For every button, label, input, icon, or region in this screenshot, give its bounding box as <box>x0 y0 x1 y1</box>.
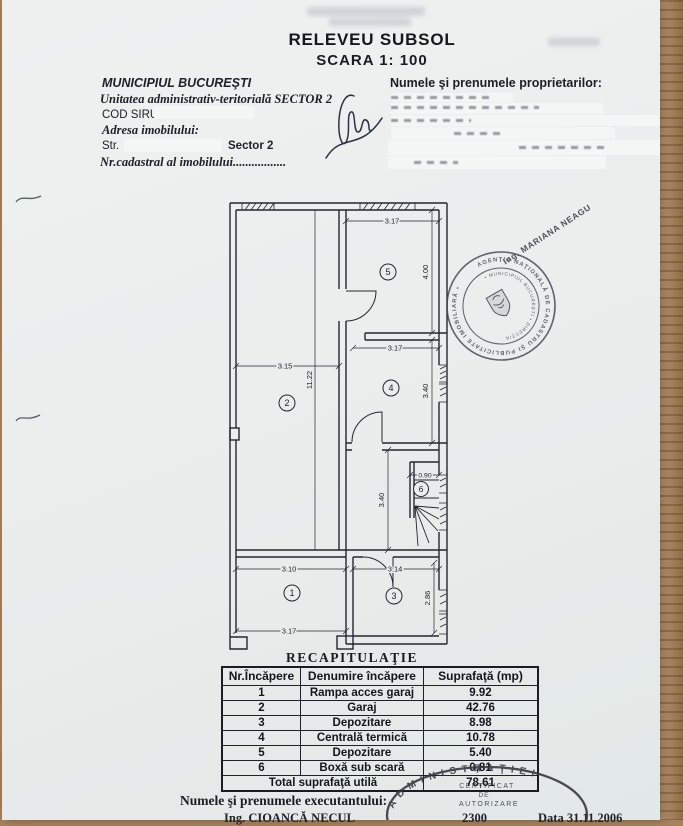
owners-label: Numele şi prenumele proprietarilor: <box>390 76 602 90</box>
signature-squiggle <box>320 90 390 165</box>
floor-plan: 3.17 4.00 3.17 3.40 3.15 11.22 0.90 3.40… <box>207 188 463 660</box>
svg-text:1: 1 <box>289 588 294 598</box>
table-row: 2 Garaj 42.76 <box>222 701 538 716</box>
cell-nr: 1 <box>222 686 300 701</box>
cell-nr: 6 <box>222 761 300 776</box>
recap-header-nr: Nr.Încăpere <box>222 667 300 686</box>
coat-of-arms-icon <box>486 289 514 320</box>
document-paper: RELEVEU SUBSOL SCARA 1: 100 MUNICIPIUL B… <box>2 0 660 820</box>
cell-area: 10.78 <box>424 731 539 746</box>
pen-mark <box>14 412 44 426</box>
cell-name: Rampa acces garaj <box>300 686 423 701</box>
oval-stamp-line2: DE <box>478 792 489 799</box>
wood-table-background <box>657 0 683 820</box>
redacted-cod-siruta <box>154 106 254 119</box>
dim-room5-height: 4.00 <box>421 265 430 280</box>
redacted-street-name <box>124 139 222 152</box>
room-number-1: 1 <box>284 585 300 601</box>
dim-room3-width: 3.14 <box>388 565 403 574</box>
redacted-owner-line <box>388 140 660 155</box>
plan-walls <box>230 203 447 649</box>
cell-nr: 5 <box>222 746 300 761</box>
page-title: RELEVEU SUBSOL <box>182 30 562 50</box>
dim-room5-width: 3.17 <box>385 217 400 226</box>
cell-name: Depozitare <box>300 716 423 731</box>
cell-area: 9.92 <box>424 686 539 701</box>
cell-name: Garaj <box>300 701 423 716</box>
cadastral-label: Nr.cadastral al imobilului..............… <box>100 155 286 170</box>
dim-room2-width: 3.15 <box>278 362 293 371</box>
oval-stamp: ADMINISTRAŢIEI CERTIFICAT DE AUTORIZARE <box>385 755 590 820</box>
table-row: 3 Depozitare 8.98 <box>222 716 538 731</box>
page-scale: SCARA 1: 100 <box>182 52 562 69</box>
sector-label: Sector 2 <box>228 140 273 152</box>
svg-text:3: 3 <box>391 591 396 601</box>
plan-dimension-labels: 3.17 4.00 3.17 3.40 3.15 11.22 0.90 3.40… <box>278 217 432 636</box>
dim-room2-height: 11.22 <box>305 371 314 389</box>
plan-dimension-lines <box>233 207 442 636</box>
admin-unit-line: Unitatea administrativ-teritorială SECTO… <box>100 92 332 107</box>
room-number-4: 4 <box>383 380 399 396</box>
redacted-owner-line <box>391 115 659 126</box>
redacted-owner-line <box>388 156 606 169</box>
dim-room1-width-top: 3.10 <box>282 565 297 574</box>
dim-room6-width: 0.90 <box>418 473 431 480</box>
cell-name: Centrală termică <box>300 731 423 746</box>
street-label: Str. <box>102 140 119 152</box>
cell-area: 8.98 <box>424 716 539 731</box>
redacted-owner-line <box>391 103 603 114</box>
redacted-owner-line <box>391 127 615 139</box>
oval-stamp-line1: CERTIFICAT <box>459 783 515 790</box>
recap-title: RECAPITULAŢIE <box>221 650 483 666</box>
oval-stamp-line3: AUTORIZARE <box>459 801 519 808</box>
cell-nr: 3 <box>222 716 300 731</box>
room-number-5: 5 <box>380 264 396 280</box>
address-label: Adresa imobilului: <box>102 123 199 138</box>
svg-text:2: 2 <box>284 398 289 408</box>
svg-text:4: 4 <box>388 383 393 393</box>
recap-header-area: Suprafaţă (mp) <box>424 667 539 686</box>
bleed-through-smudge <box>329 18 411 26</box>
bleed-through-smudge <box>307 7 425 16</box>
plan-room-numbers: 1 2 3 4 5 6 <box>279 264 429 604</box>
recap-header-name: Denumire încăpere <box>300 667 423 686</box>
svg-text:5: 5 <box>385 267 390 277</box>
scanned-document-photo: { "document": { "title": "RELEVEU SUBSOL… <box>0 0 683 820</box>
round-stamp: AGENŢIA NAŢIONALĂ DE CADASTRU ŞI PUBLICI… <box>431 236 571 376</box>
executor-name: Ing. CIOANCĂ NECUL <box>224 811 355 826</box>
dim-room1-width-bottom: 3.17 <box>282 627 297 636</box>
plan-doors <box>346 291 393 587</box>
table-row: 4 Centrală termică 10.78 <box>222 731 538 746</box>
redacted-owner-line <box>391 93 513 102</box>
municipality-line: MUNICIPIUL BUCUREŞTI <box>102 76 251 90</box>
cell-area: 42.76 <box>424 701 539 716</box>
dim-room4-width: 3.17 <box>388 344 403 353</box>
dim-hall-height: 3.40 <box>377 493 386 508</box>
room-number-2: 2 <box>279 395 295 411</box>
pen-mark <box>14 192 44 206</box>
table-row: 1 Rampa acces garaj 9.92 <box>222 686 538 701</box>
dim-room4-height: 3.40 <box>421 384 430 399</box>
recap-header-row: Nr.Încăpere Denumire încăpere Suprafaţă … <box>222 667 538 686</box>
cell-nr: 4 <box>222 731 300 746</box>
cell-nr: 2 <box>222 701 300 716</box>
room-number-3: 3 <box>386 588 402 604</box>
dim-room3-height: 2.86 <box>423 591 432 606</box>
executor-label: Numele şi prenumele executantului: <box>180 793 387 809</box>
svg-text:6: 6 <box>419 484 424 494</box>
room-number-6: 6 <box>414 482 429 497</box>
